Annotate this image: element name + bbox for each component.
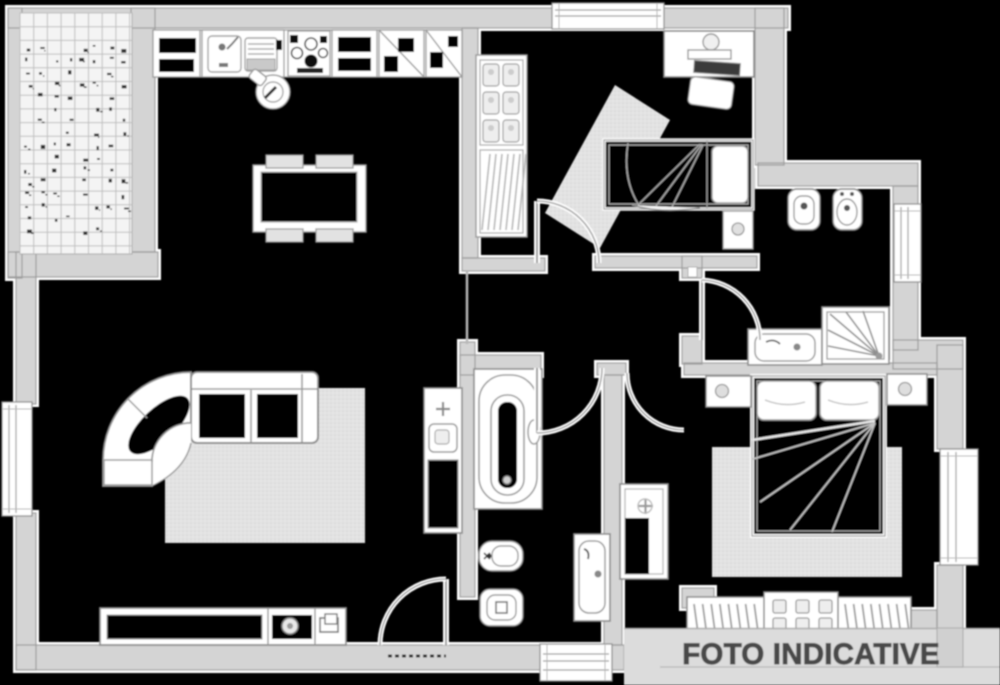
svg-text:FOTO INDICATIVE: FOTO INDICATIVE	[682, 638, 940, 671]
